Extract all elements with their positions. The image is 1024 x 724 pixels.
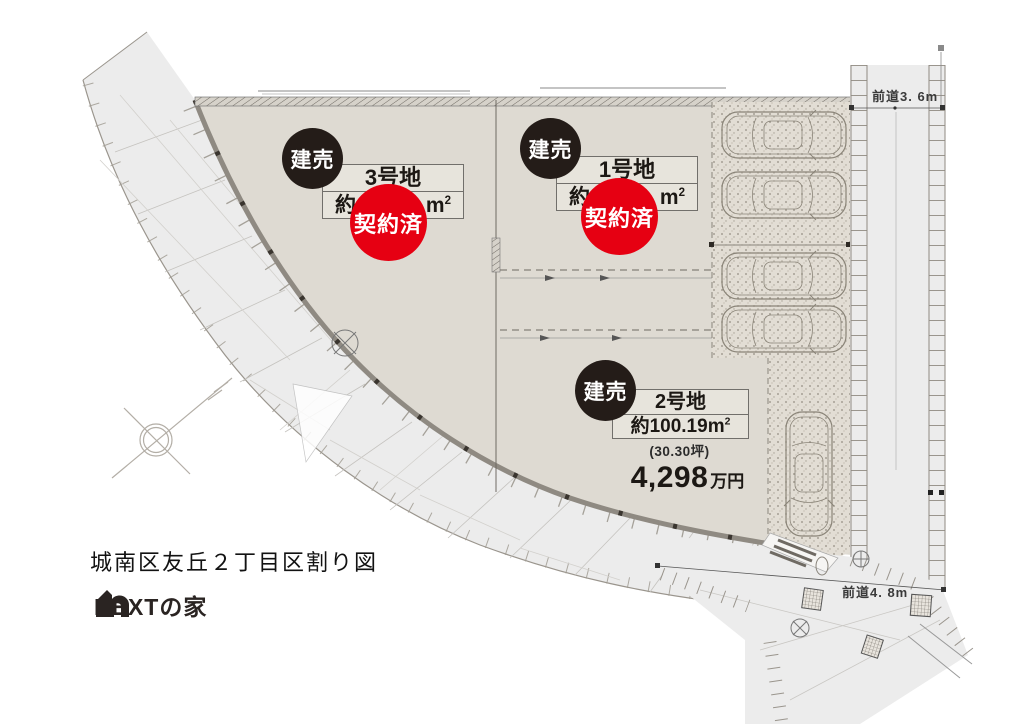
lot2-tsubo: (30.30坪) <box>612 440 747 460</box>
front-road-right-label: 前道3. 6m <box>872 86 938 105</box>
north-arrow-icon <box>112 378 232 478</box>
house-n-icon <box>94 588 130 618</box>
lot1-for-sale-badge: 建売 <box>520 118 581 179</box>
lot2-price: 4,298 万円 <box>600 461 775 495</box>
company-logo: NEXTの家 <box>94 588 207 622</box>
lot2-for-sale-badge: 建売 <box>575 360 636 421</box>
lot1-sold-badge: 契約済 <box>581 178 658 255</box>
front-road-bottom-label: 前道4. 8m <box>842 582 908 601</box>
site-plan-page: 3号地 約 m2 建売 契約済 1号地 約 m2 建売 契約済 建売 2号地 約… <box>0 0 1024 724</box>
lot3-for-sale-badge: 建売 <box>282 128 343 189</box>
page-title: 城南区友丘２丁目区割り図 <box>90 545 378 577</box>
right-road <box>849 45 945 588</box>
lot2-area: 約100.19m2 <box>613 414 748 439</box>
lot3-sold-badge: 契約済 <box>350 184 427 261</box>
